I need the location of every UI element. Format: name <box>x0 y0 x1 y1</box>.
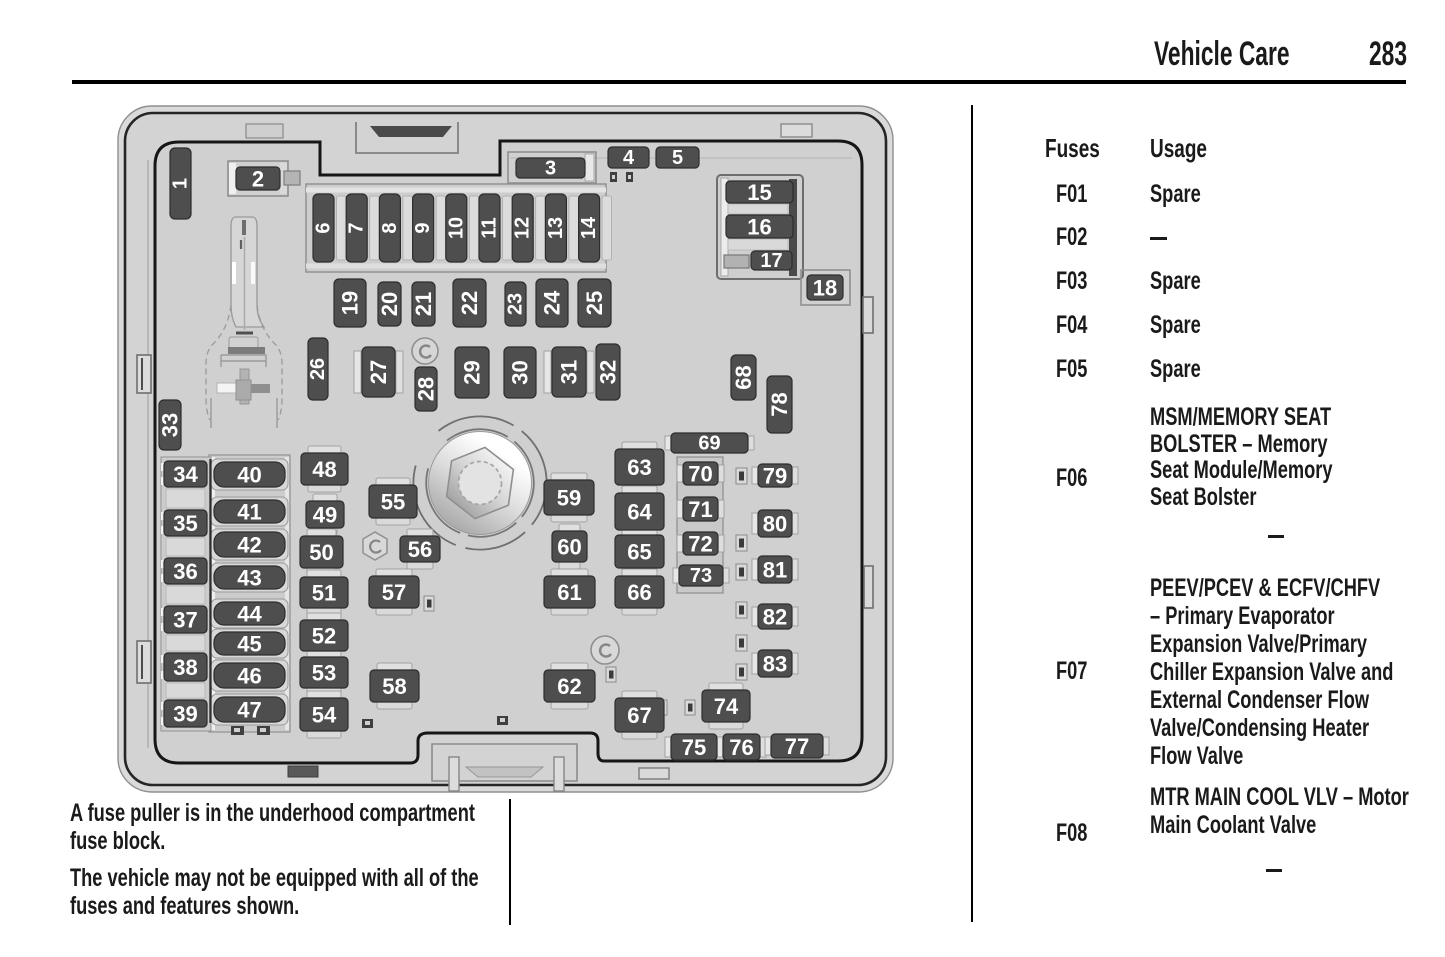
svg-text:74: 74 <box>714 694 739 719</box>
svg-text:14: 14 <box>578 216 600 239</box>
svg-text:34: 34 <box>173 462 198 487</box>
svg-text:35: 35 <box>173 511 197 536</box>
svg-text:22: 22 <box>457 291 482 315</box>
svg-text:8: 8 <box>379 222 401 233</box>
svg-text:68: 68 <box>731 365 756 389</box>
svg-text:49: 49 <box>313 503 337 528</box>
svg-text:41: 41 <box>237 500 261 525</box>
svg-text:10: 10 <box>445 217 467 239</box>
svg-text:42: 42 <box>237 533 261 558</box>
svg-text:77: 77 <box>785 734 809 759</box>
svg-text:15: 15 <box>747 180 771 205</box>
svg-text:40: 40 <box>237 463 261 488</box>
svg-text:43: 43 <box>237 566 261 591</box>
svg-text:44: 44 <box>237 602 262 627</box>
svg-text:20: 20 <box>377 292 402 316</box>
svg-text:26: 26 <box>307 358 329 380</box>
svg-text:50: 50 <box>309 540 333 565</box>
svg-text:30: 30 <box>508 360 533 384</box>
svg-text:27: 27 <box>366 360 391 384</box>
svg-text:46: 46 <box>237 664 261 689</box>
svg-text:6: 6 <box>313 222 335 233</box>
svg-text:13: 13 <box>545 217 567 239</box>
svg-text:82: 82 <box>763 605 787 630</box>
svg-text:4: 4 <box>623 147 635 169</box>
svg-text:36: 36 <box>173 559 197 584</box>
svg-text:33: 33 <box>158 413 183 437</box>
svg-text:83: 83 <box>763 652 787 677</box>
svg-text:71: 71 <box>688 497 712 522</box>
svg-text:39: 39 <box>173 702 197 727</box>
svg-text:54: 54 <box>312 703 337 728</box>
svg-text:38: 38 <box>173 655 197 680</box>
svg-text:23: 23 <box>505 293 527 315</box>
svg-text:62: 62 <box>557 674 581 699</box>
svg-text:2: 2 <box>252 167 264 192</box>
svg-text:7: 7 <box>346 222 368 233</box>
svg-text:29: 29 <box>460 360 485 384</box>
svg-text:17: 17 <box>760 250 782 272</box>
svg-text:53: 53 <box>312 661 336 686</box>
svg-text:59: 59 <box>557 486 581 511</box>
svg-text:31: 31 <box>557 360 582 384</box>
svg-text:25: 25 <box>582 291 607 315</box>
svg-text:24: 24 <box>540 290 565 315</box>
svg-text:80: 80 <box>763 512 787 537</box>
svg-text:3: 3 <box>545 158 556 180</box>
svg-text:45: 45 <box>237 632 261 657</box>
svg-text:32: 32 <box>596 360 621 384</box>
svg-text:63: 63 <box>627 455 651 480</box>
svg-text:65: 65 <box>627 540 651 565</box>
svg-text:5: 5 <box>672 147 683 169</box>
svg-text:73: 73 <box>690 565 712 587</box>
svg-text:48: 48 <box>312 457 336 482</box>
svg-text:72: 72 <box>688 532 712 557</box>
svg-text:11: 11 <box>479 217 501 238</box>
svg-text:47: 47 <box>237 698 261 723</box>
svg-text:21: 21 <box>411 292 436 316</box>
svg-text:64: 64 <box>627 500 652 525</box>
svg-text:28: 28 <box>414 377 439 401</box>
svg-text:52: 52 <box>312 624 336 649</box>
svg-text:19: 19 <box>338 291 363 315</box>
svg-text:67: 67 <box>627 703 651 728</box>
svg-text:12: 12 <box>512 217 534 239</box>
svg-text:69: 69 <box>698 433 720 455</box>
svg-text:61: 61 <box>557 580 581 605</box>
svg-text:1: 1 <box>170 178 192 189</box>
svg-text:58: 58 <box>382 674 406 699</box>
svg-text:70: 70 <box>688 462 712 487</box>
svg-text:37: 37 <box>173 608 197 633</box>
svg-text:75: 75 <box>682 735 706 760</box>
svg-text:81: 81 <box>763 558 787 583</box>
svg-text:79: 79 <box>763 464 787 489</box>
svg-text:57: 57 <box>382 580 406 605</box>
svg-text:16: 16 <box>747 215 771 240</box>
svg-text:51: 51 <box>312 581 336 606</box>
svg-text:56: 56 <box>408 537 432 562</box>
svg-text:76: 76 <box>729 735 753 760</box>
svg-text:55: 55 <box>381 490 405 515</box>
svg-text:60: 60 <box>557 535 581 560</box>
svg-text:66: 66 <box>627 580 651 605</box>
svg-text:78: 78 <box>767 392 792 416</box>
svg-text:18: 18 <box>813 276 837 301</box>
svg-text:9: 9 <box>412 222 434 233</box>
